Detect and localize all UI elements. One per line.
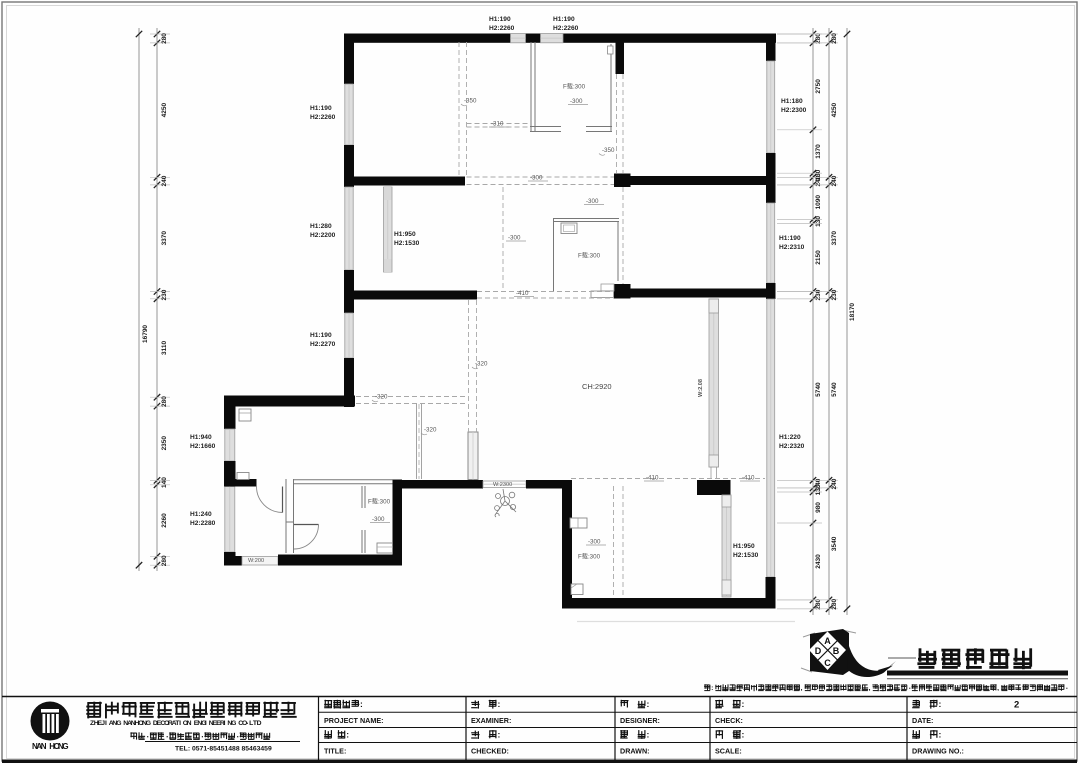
svg-text::: : [939, 729, 942, 739]
svg-text:4250: 4250 [161, 102, 168, 117]
svg-text:240: 240 [831, 175, 838, 186]
svg-text:280: 280 [831, 33, 838, 44]
svg-text:G: G [146, 720, 151, 727]
svg-text:I: I [105, 720, 107, 727]
svg-text:H2:1660: H2:1660 [190, 443, 216, 450]
svg-text:-300: -300 [588, 539, 601, 546]
svg-text::: : [939, 699, 942, 709]
svg-text:-320: -320 [475, 361, 488, 368]
svg-text:1370: 1370 [815, 144, 822, 159]
svg-text::: : [498, 699, 501, 709]
svg-text:CHECKED:: CHECKED: [471, 747, 509, 756]
svg-text:I: I [205, 720, 207, 727]
svg-text:I: I [224, 720, 226, 727]
svg-text:F载:300: F载:300 [578, 553, 601, 561]
svg-text:DRAWN:: DRAWN: [620, 747, 650, 756]
svg-text:EXAMINER:: EXAMINER: [471, 716, 511, 725]
svg-text:G: G [116, 720, 121, 727]
svg-text:,: , [997, 685, 999, 692]
svg-text:CHECK:: CHECK: [715, 716, 743, 725]
svg-text::: : [360, 699, 363, 709]
svg-text:F载:300: F载:300 [368, 498, 391, 506]
svg-text:240: 240 [161, 175, 168, 186]
svg-text:SCALE:: SCALE: [715, 747, 742, 756]
svg-text:H1:950: H1:950 [733, 543, 755, 550]
svg-text:3370: 3370 [831, 231, 838, 246]
svg-text:H2:2280: H2:2280 [190, 520, 216, 527]
svg-text:W:200: W:200 [248, 558, 264, 564]
svg-text:G: G [231, 720, 236, 727]
svg-text:DRAWING NO.:: DRAWING NO.: [912, 747, 964, 756]
svg-text:16790: 16790 [142, 325, 149, 343]
svg-text:I: I [179, 720, 181, 727]
svg-text:-300: -300 [508, 235, 521, 242]
svg-text:-300: -300 [586, 198, 599, 205]
svg-text:TEL: 0571-85451488 85463459: TEL: 0571-85451488 85463459 [175, 746, 272, 753]
svg-text:240: 240 [831, 478, 838, 489]
svg-text:,: , [801, 685, 803, 692]
svg-text:H1:190: H1:190 [553, 16, 575, 23]
svg-text:-300: -300 [372, 516, 385, 523]
svg-text:F载:300: F载:300 [578, 252, 601, 260]
svg-text:-300: -300 [570, 98, 583, 105]
svg-text:3110: 3110 [161, 341, 168, 355]
svg-text:H2:2300: H2:2300 [781, 107, 807, 114]
svg-text:H1:220: H1:220 [779, 434, 801, 441]
svg-text:H2:2260: H2:2260 [489, 25, 515, 32]
svg-text:B: B [833, 646, 840, 656]
svg-text:G: G [62, 742, 68, 751]
svg-text:D: D [815, 646, 822, 656]
svg-text:280: 280 [831, 598, 838, 609]
svg-text:5740: 5740 [815, 382, 822, 397]
svg-text:PROJECT NAME:: PROJECT NAME: [324, 716, 384, 725]
svg-text:F载:300: F载:300 [563, 83, 586, 91]
svg-text:DATE:: DATE: [912, 716, 933, 725]
svg-text:W:2.08: W:2.08 [698, 379, 704, 397]
svg-text:2150: 2150 [815, 250, 822, 265]
svg-text:3370: 3370 [161, 231, 168, 246]
svg-text:,: , [869, 685, 871, 692]
svg-text:H2:1530: H2:1530 [394, 240, 420, 247]
svg-text::: : [742, 699, 745, 709]
svg-text:H2:2310: H2:2310 [779, 244, 805, 251]
svg-text:H1:180: H1:180 [781, 98, 803, 105]
svg-text:-410: -410 [646, 475, 659, 482]
svg-text:H1:950: H1:950 [394, 231, 416, 238]
svg-text:D: D [257, 720, 262, 727]
svg-text:H1:190: H1:190 [779, 235, 801, 242]
svg-text:-410: -410 [742, 475, 755, 482]
svg-text:H1:240: H1:240 [190, 511, 212, 518]
svg-text:-320: -320 [375, 394, 388, 401]
svg-text:C: C [824, 658, 831, 668]
svg-text:H1:280: H1:280 [310, 223, 332, 230]
svg-text::: : [742, 729, 745, 739]
svg-text:2350: 2350 [161, 436, 168, 451]
svg-text:230: 230 [831, 289, 838, 300]
svg-text:280: 280 [161, 33, 168, 44]
svg-text:2430: 2430 [815, 554, 822, 569]
svg-text:280: 280 [161, 396, 168, 407]
svg-text:H1:190: H1:190 [310, 105, 332, 112]
svg-text:DESIGNER:: DESIGNER: [620, 716, 660, 725]
svg-text:-350: -350 [464, 98, 477, 105]
svg-text:CH:2920: CH:2920 [582, 382, 612, 391]
svg-text:H1:940: H1:940 [190, 434, 212, 441]
svg-text::: : [647, 729, 650, 739]
svg-text:O: O [242, 720, 247, 727]
svg-text:H2:2200: H2:2200 [310, 232, 336, 239]
svg-text:N: N [41, 742, 47, 751]
svg-text:4250: 4250 [831, 102, 838, 117]
svg-text:H1:190: H1:190 [489, 16, 511, 23]
svg-text:H2:1530: H2:1530 [733, 552, 759, 559]
svg-text:280: 280 [161, 555, 168, 566]
svg-text:130: 130 [815, 216, 822, 227]
svg-text::: : [647, 699, 650, 709]
svg-text:5740: 5740 [831, 382, 838, 397]
svg-text:-300: -300 [530, 175, 543, 182]
svg-text:1090: 1090 [815, 195, 822, 210]
svg-text:-350: -350 [602, 147, 615, 154]
svg-text:-320: -320 [424, 427, 437, 434]
svg-text::: : [498, 729, 501, 739]
svg-text:H2:2260: H2:2260 [553, 25, 579, 32]
svg-text:-310: -310 [491, 121, 504, 128]
svg-text:TITLE:: TITLE: [324, 747, 346, 756]
svg-text:230: 230 [161, 289, 168, 300]
svg-text:130: 130 [815, 484, 822, 495]
svg-text:H2:2260: H2:2260 [310, 114, 336, 121]
svg-text:3540: 3540 [831, 536, 838, 551]
svg-text:H2:2270: H2:2270 [310, 341, 336, 348]
svg-text:-410: -410 [516, 290, 529, 297]
svg-text:2: 2 [1014, 700, 1019, 711]
svg-text:H2:2320: H2:2320 [779, 443, 805, 450]
svg-text:140: 140 [161, 477, 168, 488]
svg-text:980: 980 [815, 502, 822, 513]
svg-text::: : [346, 729, 349, 739]
svg-text::: : [711, 685, 713, 692]
svg-text:280: 280 [815, 33, 822, 44]
svg-text:H1:190: H1:190 [310, 332, 332, 339]
svg-text:18170: 18170 [849, 303, 856, 321]
svg-text:W:2300: W:2300 [493, 482, 512, 488]
svg-text:A: A [824, 636, 831, 646]
svg-text:2260: 2260 [161, 513, 168, 528]
svg-text:2750: 2750 [815, 79, 822, 94]
svg-text:N: N [187, 720, 192, 727]
